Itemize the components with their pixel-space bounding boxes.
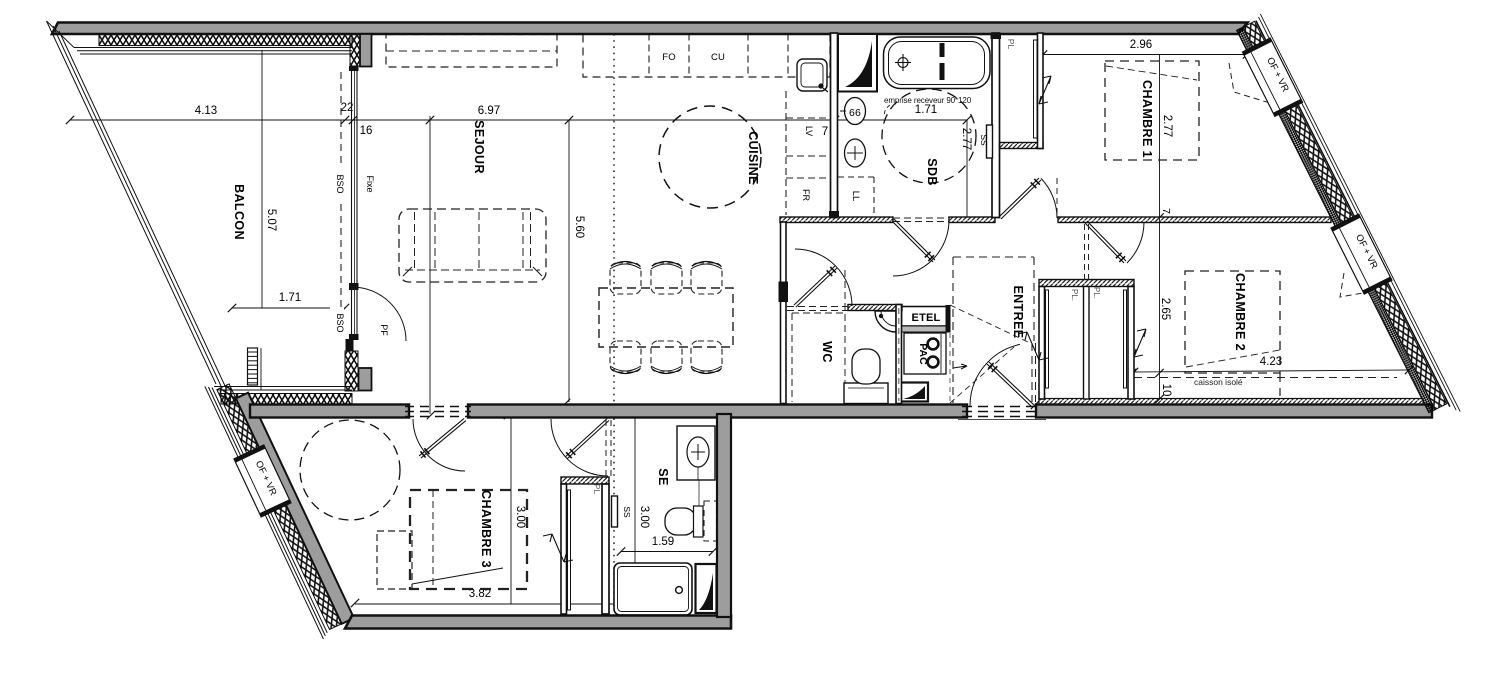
svg-text:SE: SE [656,468,670,485]
svg-text:SS: SS [979,134,989,146]
svg-text:ETEL: ETEL [912,312,941,324]
svg-text:2.65: 2.65 [1159,298,1171,320]
svg-text:BSO: BSO [335,174,345,193]
svg-text:6.97: 6.97 [478,105,500,117]
svg-text:PF: PF [379,324,389,336]
svg-text:FO: FO [662,52,676,63]
svg-text:4.23: 4.23 [1260,356,1282,368]
svg-text:emprise receveur 90*120: emprise receveur 90*120 [884,96,972,105]
svg-text:3.00: 3.00 [638,506,650,528]
svg-text:caisson isolé: caisson isolé [1194,377,1243,387]
svg-text:CHAMBRE 1: CHAMBRE 1 [1140,80,1154,158]
svg-text:BSO: BSO [335,313,345,332]
svg-text:WC: WC [820,341,834,363]
svg-text:PL: PL [1006,39,1016,50]
svg-text:10: 10 [1160,384,1172,397]
svg-text:SEJOUR: SEJOUR [472,120,486,174]
svg-text:BALCON: BALCON [232,184,246,240]
svg-text:CHAMBRE 2: CHAMBRE 2 [1233,273,1247,351]
svg-text:CU: CU [711,52,725,63]
svg-text:1.71: 1.71 [915,104,937,116]
svg-text:CUISINE: CUISINE [746,131,760,185]
svg-text:7: 7 [1160,208,1172,214]
svg-text:LL: LL [850,191,861,202]
svg-text:LV: LV [804,126,814,136]
svg-text:SS: SS [622,506,632,518]
svg-text:1.71: 1.71 [279,292,301,304]
svg-text:7: 7 [822,126,828,138]
svg-text:5.07: 5.07 [265,209,277,231]
svg-text:16: 16 [360,125,373,137]
svg-text:3.00: 3.00 [514,506,526,528]
svg-text:1.59: 1.59 [652,536,674,548]
svg-text:CHAMBRE 3: CHAMBRE 3 [479,490,493,568]
svg-text:PL.: PL. [1092,287,1101,299]
svg-text:2.77: 2.77 [960,128,972,150]
svg-text:FR: FR [801,189,811,201]
svg-text:2.77: 2.77 [1161,115,1173,137]
svg-text:PL.: PL. [1070,289,1079,301]
svg-text:PL: PL [592,484,602,495]
svg-text:ENTREE: ENTREE [1011,285,1025,338]
svg-text:SDB: SDB [925,158,939,186]
svg-text:66: 66 [849,107,861,119]
svg-text:2.96: 2.96 [1130,39,1152,51]
svg-text:5.60: 5.60 [573,216,585,238]
svg-text:4.13: 4.13 [195,105,217,117]
svg-text:PAC: PAC [917,343,929,365]
svg-text:Fixe: Fixe [365,175,375,192]
